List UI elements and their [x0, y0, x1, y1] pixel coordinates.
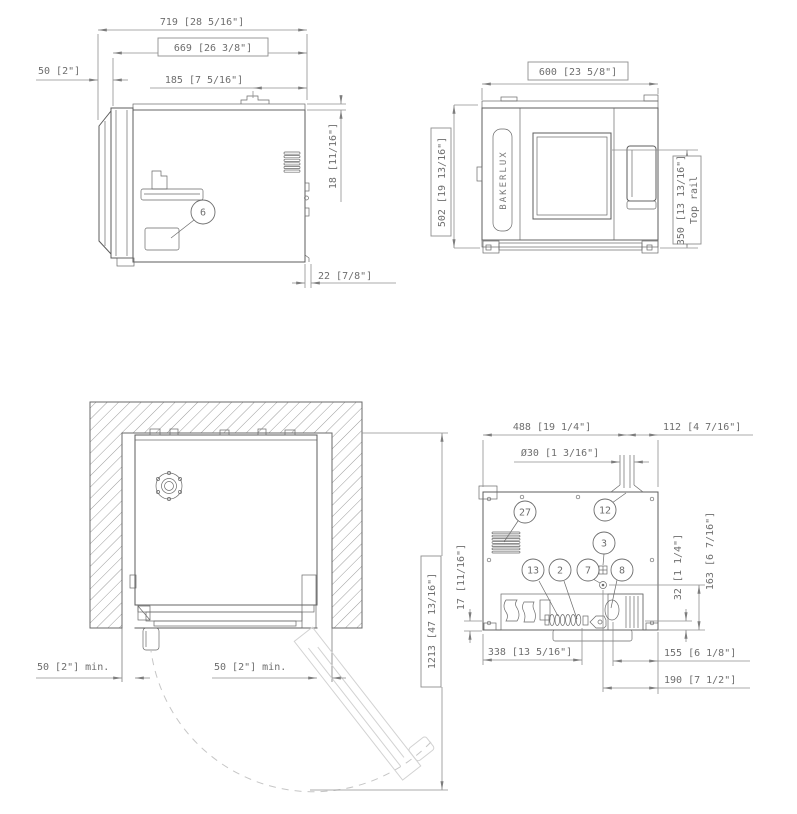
- callout-8: 8: [619, 566, 625, 577]
- dim-top-rail: 350 [13 13/16"]: [676, 155, 687, 245]
- door-swing-arc: [151, 651, 431, 792]
- callout-13: 13: [527, 566, 539, 577]
- side-view: 6 719 [28 5/16"] 669 [26 3/8"] 50 [2"] 1…: [36, 17, 396, 288]
- door-handle-plan: [143, 628, 159, 650]
- dim-outlet-height: 163 [6 7/16"]: [705, 512, 716, 590]
- hose-fitting-right: [583, 616, 588, 625]
- side-handle-stem: [152, 171, 167, 189]
- dim-lid-height: 18 [11/16"]: [328, 123, 339, 189]
- brand-label: BAKERLUX: [499, 150, 509, 209]
- flue-chimney: [611, 455, 643, 492]
- dim-overall-depth: 719 [28 5/16"]: [160, 17, 244, 28]
- dim-flue-from-back: 185 [7 5/16"]: [165, 75, 243, 86]
- rear-foot-right: [646, 623, 658, 630]
- side-flue-stub: [241, 96, 269, 104]
- door-plan: [135, 575, 317, 650]
- side-handle-bar: [141, 189, 203, 200]
- dim-left-clearance: 50 [2"] min.: [37, 662, 109, 673]
- front-top-bracket-right: [644, 95, 658, 101]
- callout-2: 2: [557, 566, 563, 577]
- dim-flue-from-right: 112 [4 7/16"]: [663, 422, 741, 433]
- rear-body: [483, 492, 658, 630]
- dim-drain-from-right: 155 [6 1/8"]: [664, 648, 736, 659]
- callout-7: 7: [585, 566, 591, 577]
- door-handle: [627, 146, 656, 201]
- dim-body-depth: 669 [26 3/8"]: [174, 43, 252, 54]
- dim-height: 502 [19 13/16"]: [437, 137, 448, 227]
- dim-foot-height: 17 [11/16"]: [456, 544, 467, 610]
- dim-top-rail-label: Top rail: [689, 176, 700, 224]
- rear-view: 27 12 3 13 2 7 8 488 [19 1/4"]: [456, 422, 753, 694]
- dim-drain-height: 32 [1 1/4"]: [673, 534, 684, 600]
- rear-vent-grille: [492, 532, 520, 553]
- front-base-rail: [482, 240, 658, 247]
- dim-flue-diameter: Ø30 [1 3/16"]: [521, 447, 599, 459]
- callout-12: 12: [599, 506, 611, 517]
- callout-rating-plate: 6: [171, 200, 215, 238]
- door-pivot-housing: [302, 575, 316, 628]
- side-door-frame: [111, 108, 133, 258]
- dim-cable-from-right: 190 [7 1/2"]: [664, 675, 736, 686]
- side-hinge-bump-bottom: [305, 208, 309, 216]
- steam-flange: [156, 471, 182, 500]
- side-lid: [133, 104, 305, 110]
- dim-door-open-depth: 1213 [47 13/16"]: [427, 573, 438, 669]
- side-vent-slots: [284, 152, 300, 172]
- top-view: 50 [2"] min. 50 [2"] min. 1213 [47 13/16…: [36, 402, 448, 792]
- side-view-dimensions: 719 [28 5/16"] 669 [26 3/8"] 50 [2"] 185…: [36, 17, 396, 288]
- oven-top-outline: [135, 435, 317, 605]
- bottom-bracket: [553, 630, 632, 641]
- dim-door-offset: 50 [2"]: [38, 66, 80, 77]
- rear-foot-left: [484, 623, 496, 630]
- side-hinge-bump-top: [305, 183, 309, 191]
- callout-27: 27: [519, 508, 531, 519]
- oven-dimension-drawing: 6 719 [28 5/16"] 669 [26 3/8"] 50 [2"] 1…: [0, 0, 797, 814]
- side-front-foot: [117, 258, 134, 266]
- dim-gas-from-left: 338 [13 5/16"]: [488, 647, 572, 658]
- technical-drawing-page: 6 719 [28 5/16"] 669 [26 3/8"] 50 [2"] 1…: [0, 0, 797, 814]
- dim-flue-from-left: 488 [19 1/4"]: [513, 422, 591, 433]
- rating-plate: [145, 228, 179, 250]
- gas-train-cutout-1: [504, 600, 519, 621]
- callout-3: 3: [601, 539, 607, 550]
- recess-walls: [90, 402, 362, 628]
- side-rear-foot: [305, 255, 309, 262]
- front-top-rail: [482, 101, 658, 108]
- side-body: [133, 110, 305, 262]
- dim-rear-offset: 22 [7/8"]: [318, 271, 372, 282]
- rear-screws: [487, 495, 654, 625]
- front-hinge-bump: [477, 167, 482, 181]
- callout-6-number: 6: [200, 208, 206, 219]
- front-view: BAKERLUX 600 [23 5/8"] 502 [19 13/16"]: [431, 62, 701, 253]
- rear-view-dimensions: 488 [19 1/4"] 112 [4 7/16"] Ø30 [1 3/16"…: [456, 422, 753, 694]
- door-window: [533, 133, 611, 219]
- front-view-dimensions: 600 [23 5/8"] 502 [19 13/16"] 350 [13 13…: [431, 62, 701, 248]
- dim-width: 600 [23 5/8"]: [539, 67, 617, 78]
- front-top-bracket-left: [501, 97, 517, 101]
- dim-right-clearance: 50 [2"] min.: [214, 662, 286, 673]
- gas-train-cutout-2: [523, 602, 536, 622]
